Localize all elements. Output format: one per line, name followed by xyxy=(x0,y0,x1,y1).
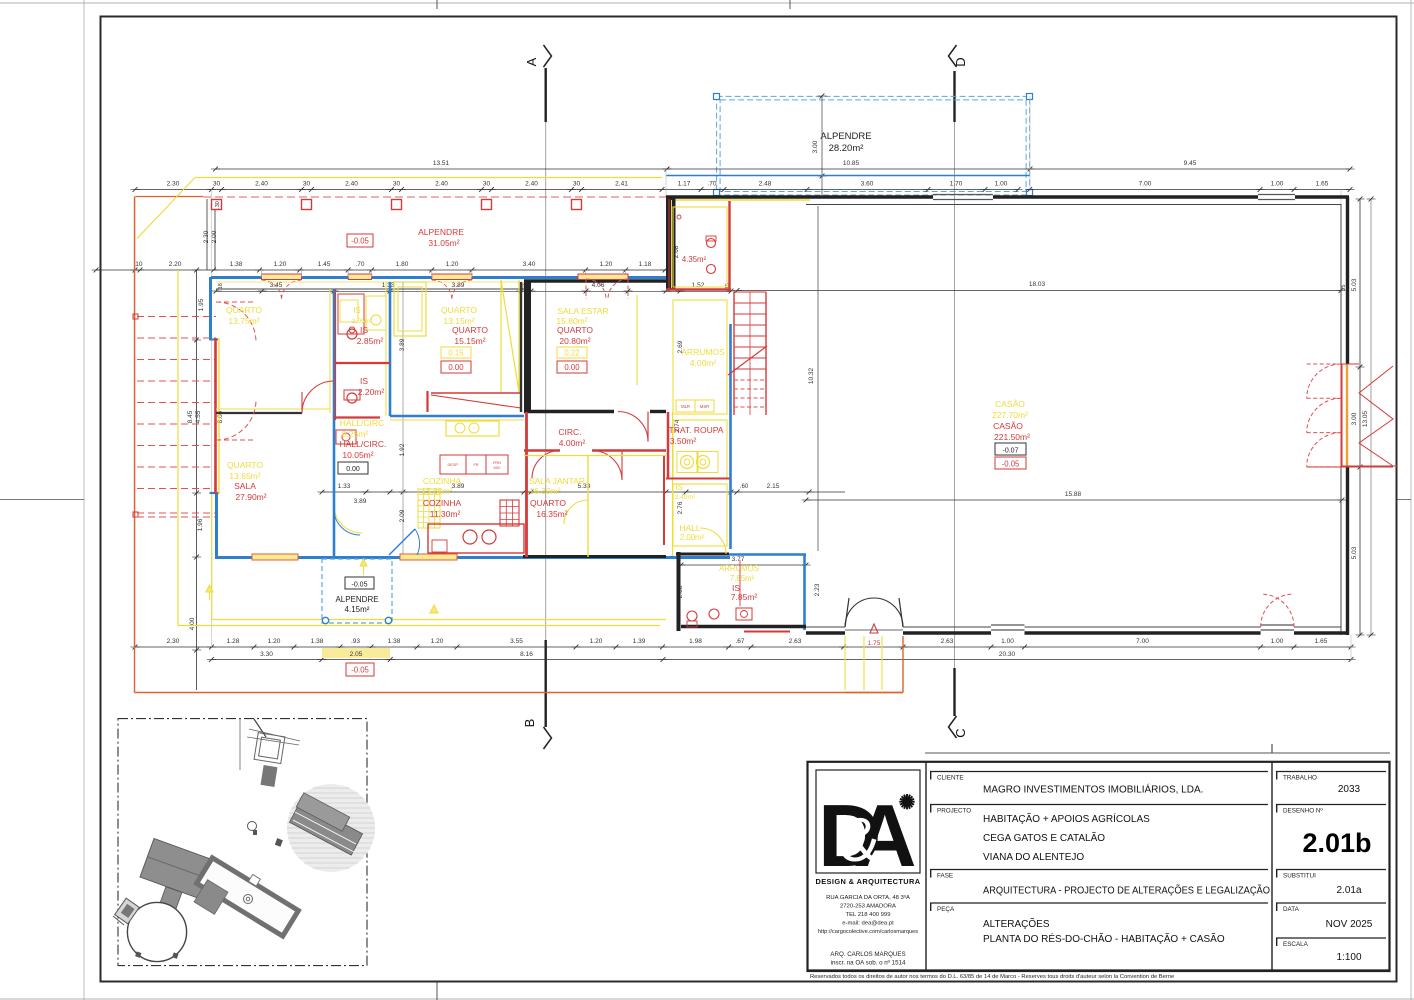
svg-text:8.25m²: 8.25m² xyxy=(342,429,369,439)
svg-text:3.45: 3.45 xyxy=(270,282,283,289)
svg-text:0.00: 0.00 xyxy=(346,466,360,473)
svg-text:1.33: 1.33 xyxy=(382,282,395,289)
svg-text:QUARTO: QUARTO xyxy=(452,325,488,335)
svg-text:inscr. na OA sob. o nº 1514: inscr. na OA sob. o nº 1514 xyxy=(831,960,906,967)
svg-text:15.15m²: 15.15m² xyxy=(454,336,485,346)
svg-text:2.23: 2.23 xyxy=(814,583,821,596)
svg-text:PROJECTO: PROJECTO xyxy=(937,808,971,815)
svg-text:QUARTO: QUARTO xyxy=(441,305,477,315)
svg-text:4.00m²: 4.00m² xyxy=(690,358,717,368)
svg-text:1.98: 1.98 xyxy=(689,638,702,645)
svg-text:2033: 2033 xyxy=(1338,784,1361,795)
svg-text:2.30: 2.30 xyxy=(167,638,180,645)
svg-text:30: 30 xyxy=(573,181,581,188)
svg-text:30: 30 xyxy=(303,181,311,188)
svg-text:8.16: 8.16 xyxy=(520,651,533,658)
svg-text:NOV 2025: NOV 2025 xyxy=(1326,919,1373,930)
svg-text:2.30: 2.30 xyxy=(203,230,210,243)
svg-text:MIC: MIC xyxy=(494,466,501,470)
svg-text:CIRC.: CIRC. xyxy=(558,427,581,437)
svg-text:7.00: 7.00 xyxy=(1139,181,1152,188)
svg-text:0.00: 0.00 xyxy=(564,363,580,372)
svg-text:-0.07: -0.07 xyxy=(1003,448,1019,455)
svg-text:221.50m²: 221.50m² xyxy=(994,432,1030,442)
svg-text:3.40: 3.40 xyxy=(523,261,536,268)
svg-text:1.20: 1.20 xyxy=(600,261,613,268)
svg-text:2.01a: 2.01a xyxy=(1336,885,1361,896)
svg-text:HALL/CIRC.: HALL/CIRC. xyxy=(340,439,387,449)
svg-text:16.35m²: 16.35m² xyxy=(536,509,567,519)
svg-text:.60: .60 xyxy=(740,484,749,490)
svg-text:0.22: 0.22 xyxy=(564,349,579,358)
svg-text:SUBSTITUI: SUBSTITUI xyxy=(1283,873,1316,880)
svg-text:TEL 218 400 999: TEL 218 400 999 xyxy=(846,912,891,918)
svg-text:2.63: 2.63 xyxy=(789,638,802,645)
svg-text:QUARTO: QUARTO xyxy=(226,305,262,315)
svg-text:-0.05: -0.05 xyxy=(1002,460,1020,469)
svg-text:2720-253 AMADORA: 2720-253 AMADORA xyxy=(840,904,896,910)
svg-text:2.15: 2.15 xyxy=(767,483,780,490)
svg-text:QUARTO: QUARTO xyxy=(557,325,593,335)
svg-text:4.55: 4.55 xyxy=(195,410,202,423)
svg-text:QUARTO: QUARTO xyxy=(227,460,263,470)
svg-text:1.28: 1.28 xyxy=(227,638,240,645)
svg-text:10.32: 10.32 xyxy=(808,367,815,384)
svg-text:http:​//cargocolective.com/car: http:​//cargocolective.com/carlosmarques xyxy=(818,929,918,935)
svg-text:DESENHO Nº: DESENHO Nº xyxy=(1283,808,1323,815)
svg-text:DESIGN & ARQUITECTURA: DESIGN & ARQUITECTURA xyxy=(815,877,920,886)
svg-text:5.03: 5.03 xyxy=(1351,278,1358,291)
svg-text:✺: ✺ xyxy=(899,792,916,814)
svg-text:1.96: 1.96 xyxy=(197,518,204,531)
svg-text:2.09: 2.09 xyxy=(399,509,406,522)
svg-text:SALA JANTAR: SALA JANTAR xyxy=(529,476,585,486)
svg-text:A: A xyxy=(524,57,539,66)
svg-text:13.51: 13.51 xyxy=(433,160,450,167)
svg-text:.30: .30 xyxy=(215,201,221,209)
svg-text:ALPENDRE: ALPENDRE xyxy=(418,227,464,237)
svg-text:-0.05: -0.05 xyxy=(352,582,368,589)
svg-text:ARRUMOS: ARRUMOS xyxy=(681,347,725,357)
svg-text:C: C xyxy=(953,728,968,737)
svg-text:1.00: 1.00 xyxy=(1271,181,1284,188)
svg-text:28.20m²: 28.20m² xyxy=(829,143,864,154)
svg-text:20.80m²: 20.80m² xyxy=(559,336,590,346)
svg-text:3.89: 3.89 xyxy=(399,338,406,351)
svg-text:CLIENTE: CLIENTE xyxy=(937,775,964,782)
svg-text:2.40: 2.40 xyxy=(255,181,268,188)
svg-text:3.89: 3.89 xyxy=(354,498,367,505)
svg-text:3.50m²: 3.50m² xyxy=(670,436,697,446)
svg-text:31.05m²: 31.05m² xyxy=(428,238,459,248)
svg-text:13.65m²: 13.65m² xyxy=(229,471,260,481)
svg-text:IS: IS xyxy=(675,483,682,492)
svg-text:9.45: 9.45 xyxy=(1184,160,1197,167)
svg-text:5.03: 5.03 xyxy=(1351,546,1358,559)
svg-text:2.40: 2.40 xyxy=(525,181,538,188)
svg-text:7.00: 7.00 xyxy=(1136,638,1149,645)
svg-text:1.20: 1.20 xyxy=(268,638,281,645)
svg-text:HABITAÇÃO + APOIOS AGRÍCOLAS: HABITAÇÃO + APOIOS AGRÍCOLAS xyxy=(983,812,1150,825)
svg-text:1.65: 1.65 xyxy=(1315,638,1328,645)
svg-text:1.95: 1.95 xyxy=(198,298,205,311)
svg-text:-0.05: -0.05 xyxy=(351,237,369,246)
svg-text:3.30: 3.30 xyxy=(260,651,273,658)
svg-text:1.75: 1.75 xyxy=(868,640,881,647)
svg-text:2.30: 2.30 xyxy=(167,181,180,188)
svg-text:&: & xyxy=(839,806,880,875)
svg-text:SALA: SALA xyxy=(234,481,256,491)
svg-text:2.85m²: 2.85m² xyxy=(357,336,384,346)
svg-text:HALL/CIRC: HALL/CIRC xyxy=(340,418,384,428)
svg-text:3.77: 3.77 xyxy=(732,556,745,563)
svg-text:ESCALA: ESCALA xyxy=(1283,941,1309,948)
svg-text:1.65: 1.65 xyxy=(1316,181,1329,188)
svg-text:3.00: 3.00 xyxy=(1351,412,1358,425)
svg-text:ALTERAÇÕES: ALTERAÇÕES xyxy=(983,917,1050,930)
svg-text:MAGRO INVESTIMENTOS IMOBILIÁRI: MAGRO INVESTIMENTOS IMOBILIÁRIOS, LDA. xyxy=(983,783,1203,796)
svg-text:227.70m²: 227.70m² xyxy=(992,410,1028,420)
svg-text:MLR: MLR xyxy=(681,404,690,409)
svg-text:TRABALHO: TRABALHO xyxy=(1283,775,1317,782)
svg-text:IS: IS xyxy=(353,306,360,315)
svg-text:ARRUMOS: ARRUMOS xyxy=(719,564,759,573)
svg-text:1.33: 1.33 xyxy=(338,483,351,490)
svg-text:HALL: HALL xyxy=(679,523,701,533)
svg-text:1.00: 1.00 xyxy=(1001,638,1014,645)
svg-text:CASÃO: CASÃO xyxy=(995,399,1025,409)
svg-text:13.75m²: 13.75m² xyxy=(228,316,259,326)
svg-text:1.70: 1.70 xyxy=(950,181,963,188)
svg-text:1:100: 1:100 xyxy=(1336,952,1361,963)
svg-text:2.48: 2.48 xyxy=(759,181,772,188)
svg-text:SALA ESTAR: SALA ESTAR xyxy=(557,306,608,316)
svg-text:Reservados todos os direitos d: Reservados todos os direitos de autor no… xyxy=(810,974,1174,980)
svg-text:2.05: 2.05 xyxy=(350,651,363,658)
svg-text:IS: IS xyxy=(360,376,368,386)
svg-text:1.38: 1.38 xyxy=(230,261,243,268)
svg-text:2.41: 2.41 xyxy=(615,181,628,188)
svg-text:1.17: 1.17 xyxy=(678,181,691,188)
svg-text:2.00m²: 2.00m² xyxy=(680,533,705,542)
svg-text:8.45: 8.45 xyxy=(187,410,194,423)
svg-text:ARQUITECTURA - PROJECTO DE ALT: ARQUITECTURA - PROJECTO DE ALTERAÇÕES E … xyxy=(983,884,1270,897)
svg-text:1.92: 1.92 xyxy=(399,443,406,456)
svg-text:1.39: 1.39 xyxy=(633,638,646,645)
svg-text:4.00: 4.00 xyxy=(189,617,196,630)
svg-text:DATA: DATA xyxy=(1283,906,1300,913)
svg-text:2.76: 2.76 xyxy=(677,501,684,514)
svg-text:1.20: 1.20 xyxy=(274,261,287,268)
svg-text:1.20: 1.20 xyxy=(431,638,444,645)
svg-text:2.20m²: 2.20m² xyxy=(358,387,385,397)
svg-text:4.35m²: 4.35m² xyxy=(682,255,707,264)
svg-text:COZINHA: COZINHA xyxy=(423,476,462,486)
svg-text:-0.05: -0.05 xyxy=(351,666,369,675)
svg-text:16.30m²: 16.30m² xyxy=(529,486,560,496)
svg-text:DESP.: DESP. xyxy=(448,463,459,467)
svg-text:0.15: 0.15 xyxy=(448,349,464,358)
svg-text:1.20: 1.20 xyxy=(446,261,459,268)
svg-text:CEGA GATOS E CATALÃO: CEGA GATOS E CATALÃO xyxy=(983,831,1105,844)
svg-text:7.85m²: 7.85m² xyxy=(730,574,755,583)
svg-text:TRAT. ROUPA: TRAT. ROUPA xyxy=(669,425,724,435)
svg-text:B: B xyxy=(522,719,537,728)
svg-text:30: 30 xyxy=(213,181,221,188)
svg-text:IS: IS xyxy=(360,325,368,335)
svg-text:2.40: 2.40 xyxy=(345,181,358,188)
svg-text:D: D xyxy=(953,57,968,66)
svg-text:1.45: 1.45 xyxy=(318,261,331,268)
svg-text:30: 30 xyxy=(393,181,401,188)
svg-text:4.00m²: 4.00m² xyxy=(559,438,586,448)
svg-text:3.00: 3.00 xyxy=(812,140,819,153)
svg-text:4.15m²: 4.15m² xyxy=(345,605,370,614)
svg-text:10.85: 10.85 xyxy=(843,160,860,167)
svg-text:3.55: 3.55 xyxy=(510,638,523,645)
svg-text:ALPENDRE: ALPENDRE xyxy=(820,131,871,142)
svg-text:1.18: 1.18 xyxy=(639,261,652,268)
svg-text:30: 30 xyxy=(483,181,491,188)
svg-text:1.38: 1.38 xyxy=(388,638,401,645)
svg-text:2.05m²: 2.05m² xyxy=(352,318,373,325)
svg-text:.70: .70 xyxy=(707,181,716,188)
svg-text:.25: .25 xyxy=(1341,284,1347,291)
svg-text:1.00: 1.00 xyxy=(1271,638,1284,645)
svg-text:PLANTA DO RÉS-DO-CHÃO - HABITA: PLANTA DO RÉS-DO-CHÃO - HABITAÇÃO + CASÃ… xyxy=(983,932,1225,945)
svg-text:15.30m²: 15.30m² xyxy=(421,486,452,496)
svg-text:0.00: 0.00 xyxy=(448,363,464,372)
svg-text:COZINHA: COZINHA xyxy=(423,498,462,508)
svg-text:3.60: 3.60 xyxy=(861,181,874,188)
svg-text:1.80: 1.80 xyxy=(396,261,409,268)
svg-text:e-mail: dea@dea.pt: e-mail: dea@dea.pt xyxy=(842,921,894,927)
svg-text:10.05m²: 10.05m² xyxy=(342,450,373,460)
svg-text:2.00: 2.00 xyxy=(211,230,218,243)
svg-text:2.20: 2.20 xyxy=(169,261,182,268)
svg-text:.18: .18 xyxy=(218,283,224,291)
svg-text:13.05: 13.05 xyxy=(1362,410,1369,427)
svg-text:ARQ. CARLOS MARQUES: ARQ. CARLOS MARQUES xyxy=(830,951,905,958)
svg-text:1.38: 1.38 xyxy=(311,638,324,645)
svg-text:RUA GARCIA DA ORTA, 48 3ºA: RUA GARCIA DA ORTA, 48 3ºA xyxy=(826,894,910,901)
svg-text:20.30: 20.30 xyxy=(999,651,1016,658)
svg-text:MSR: MSR xyxy=(700,404,709,409)
svg-text:2.63: 2.63 xyxy=(941,638,954,645)
svg-text:1.20: 1.20 xyxy=(590,638,603,645)
svg-text:.67: .67 xyxy=(735,638,744,645)
svg-text:.70: .70 xyxy=(355,261,364,268)
svg-text:7.85m²: 7.85m² xyxy=(731,592,758,602)
svg-text:2.40m²: 2.40m² xyxy=(675,494,696,501)
svg-text:.93: .93 xyxy=(351,638,360,645)
svg-text:1.52: 1.52 xyxy=(692,282,705,289)
svg-text:CASÃO: CASÃO xyxy=(993,421,1023,431)
svg-text:18.03: 18.03 xyxy=(1029,281,1046,288)
svg-text:QUARTO: QUARTO xyxy=(530,498,566,508)
svg-text:2.01b: 2.01b xyxy=(1302,828,1371,858)
svg-text:PEÇA: PEÇA xyxy=(937,906,955,913)
svg-text:2.40: 2.40 xyxy=(435,181,448,188)
svg-text:VIANA DO ALENTEJO: VIANA DO ALENTEJO xyxy=(983,852,1084,863)
svg-text:FASE: FASE xyxy=(937,873,953,880)
svg-text:ALPENDRE: ALPENDRE xyxy=(335,595,378,604)
svg-text:27.90m²: 27.90m² xyxy=(235,492,266,502)
svg-text:FR: FR xyxy=(473,463,478,467)
svg-text:1.00: 1.00 xyxy=(995,181,1008,188)
svg-text:FRN: FRN xyxy=(493,461,501,465)
svg-text:15.88: 15.88 xyxy=(1065,491,1082,498)
svg-text:11.30m²: 11.30m² xyxy=(430,509,461,519)
